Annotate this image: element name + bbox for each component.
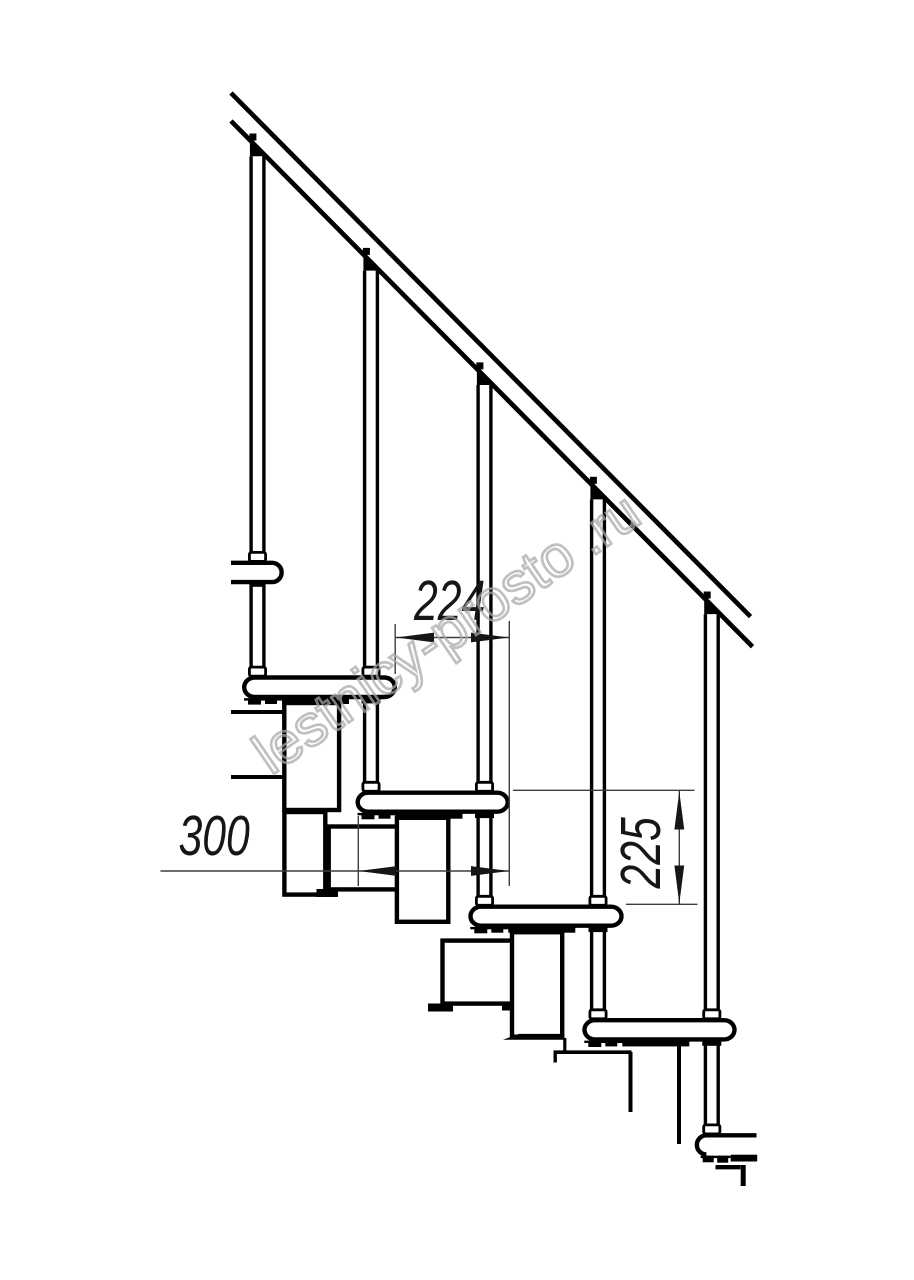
svg-text:300: 300 xyxy=(179,803,250,867)
svg-text:225: 225 xyxy=(608,816,672,889)
